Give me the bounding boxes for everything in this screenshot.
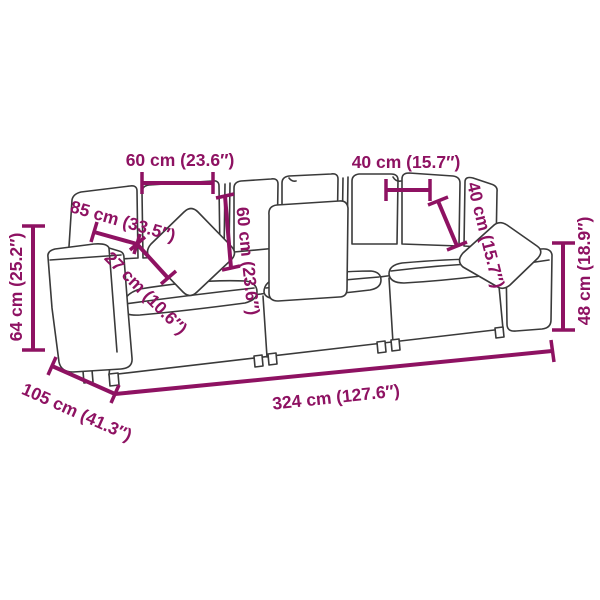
- dimension-label: 60 cm (23.6″): [126, 150, 235, 170]
- sofa-foot: [109, 373, 119, 386]
- sofa-foot: [254, 355, 263, 367]
- sofa-foot: [377, 341, 386, 353]
- sofa-foot: [391, 339, 400, 351]
- dim-right-arm-height: 48 cm (18.9″): [552, 217, 594, 330]
- dimension-diagram: 60 cm (23.6″) 60 cm (23.6″) 40 cm (15.7″…: [0, 0, 600, 600]
- dimension-label: 48 cm (18.9″): [574, 217, 594, 326]
- dimension-label: 64 cm (25.2″): [6, 233, 26, 342]
- throw-pillow: [269, 201, 348, 301]
- sofa-foot: [268, 353, 277, 365]
- dimension-tick: [551, 340, 554, 362]
- sofa-foot: [495, 327, 504, 338]
- dimension-label: 40 cm (15.7″): [352, 152, 461, 172]
- dimension-label: 324 cm (127.6″): [271, 380, 400, 413]
- back-cushion: [352, 174, 398, 244]
- dim-overall-height: 64 cm (25.2″): [6, 226, 45, 350]
